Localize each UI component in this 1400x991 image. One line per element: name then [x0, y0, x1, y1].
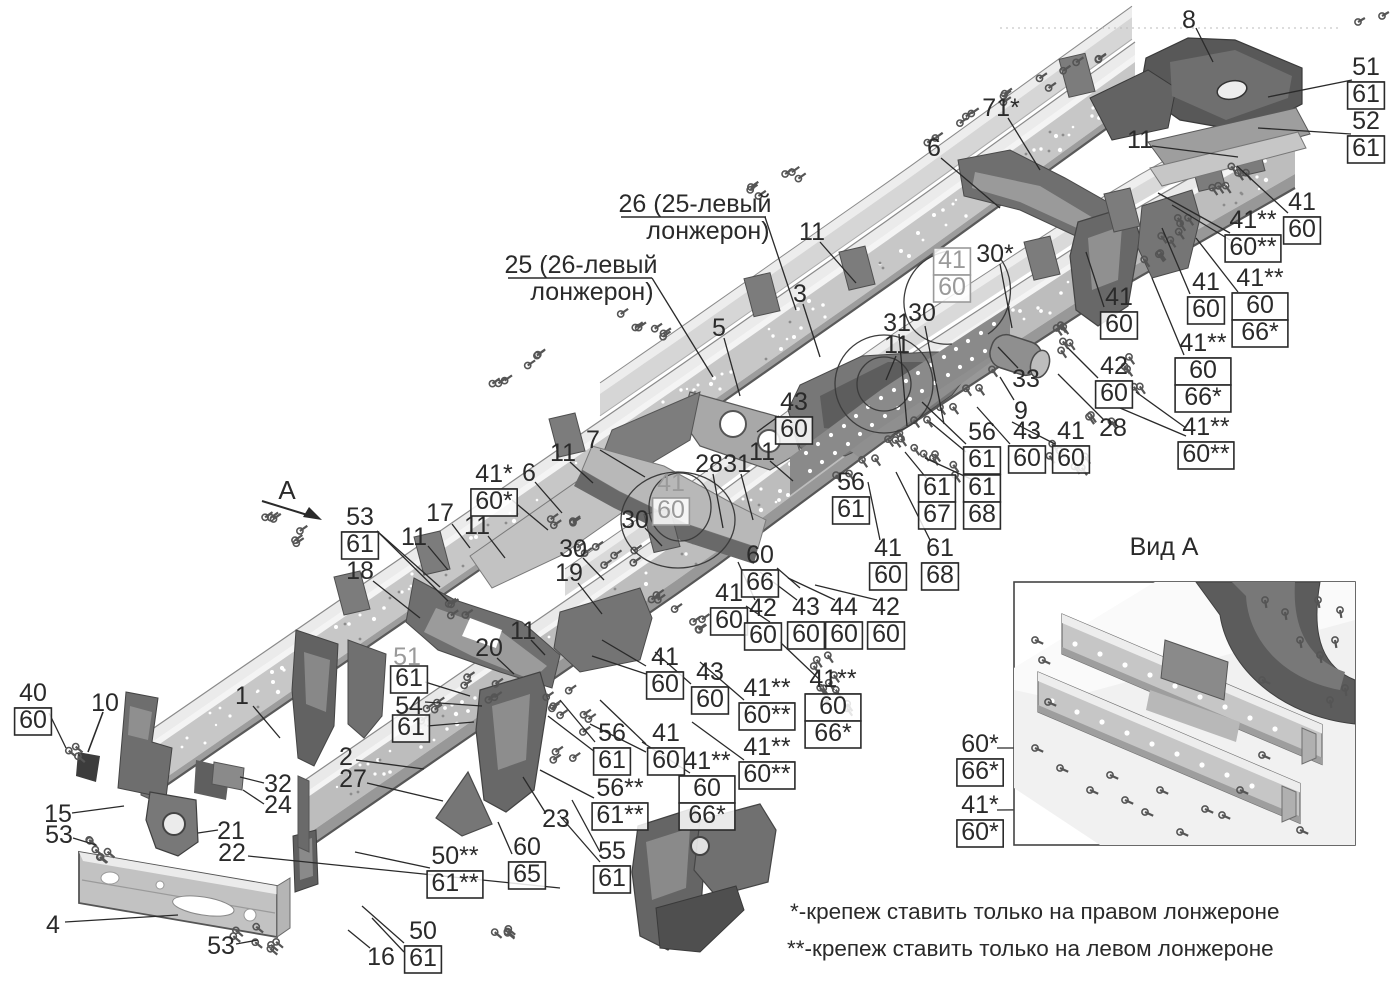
- svg-text:60**: 60**: [743, 760, 791, 788]
- svg-text:60: 60: [819, 692, 847, 720]
- svg-text:41: 41: [1105, 283, 1133, 311]
- svg-text:41: 41: [1192, 268, 1220, 296]
- svg-text:61: 61: [409, 944, 437, 972]
- svg-text:22: 22: [218, 839, 246, 867]
- svg-text:лонжерон): лонжерон): [530, 278, 653, 306]
- svg-text:41**: 41**: [743, 733, 791, 761]
- svg-text:30: 30: [908, 299, 936, 327]
- svg-text:43: 43: [792, 593, 820, 621]
- svg-text:33: 33: [1012, 365, 1040, 393]
- svg-text:66*: 66*: [961, 757, 999, 785]
- svg-text:60: 60: [651, 670, 679, 698]
- svg-text:4: 4: [46, 911, 60, 939]
- svg-text:60: 60: [780, 415, 808, 443]
- svg-text:28: 28: [695, 450, 723, 478]
- svg-text:44: 44: [830, 593, 858, 621]
- svg-text:11: 11: [749, 438, 775, 466]
- svg-text:61: 61: [837, 495, 865, 523]
- svg-text:61: 61: [923, 473, 951, 501]
- svg-text:60: 60: [1246, 291, 1274, 319]
- svg-text:66: 66: [746, 568, 774, 596]
- svg-text:31: 31: [723, 450, 751, 478]
- svg-text:61: 61: [598, 746, 626, 774]
- svg-text:11: 11: [464, 512, 490, 540]
- svg-text:28: 28: [1099, 414, 1127, 442]
- svg-text:41**: 41**: [683, 747, 731, 775]
- svg-text:**-крепеж ставить только на ле: **-крепеж ставить только на левом лонжер…: [787, 936, 1274, 961]
- svg-text:41**: 41**: [743, 674, 791, 702]
- svg-text:42: 42: [1100, 352, 1128, 380]
- svg-text:66*: 66*: [1241, 318, 1279, 346]
- svg-text:41: 41: [1057, 417, 1085, 445]
- svg-text:50**: 50**: [431, 842, 479, 870]
- svg-text:41*: 41*: [475, 460, 513, 488]
- svg-text:43: 43: [1013, 417, 1041, 445]
- svg-text:30: 30: [621, 506, 649, 534]
- svg-text:41**: 41**: [1182, 413, 1230, 441]
- svg-text:60: 60: [1105, 310, 1133, 338]
- svg-text:60**: 60**: [743, 701, 791, 729]
- svg-text:40: 40: [19, 679, 47, 707]
- svg-text:60: 60: [696, 685, 724, 713]
- svg-text:6: 6: [927, 134, 941, 162]
- svg-text:60: 60: [657, 496, 685, 524]
- svg-text:60: 60: [1100, 379, 1128, 407]
- svg-text:71*: 71*: [982, 94, 1020, 122]
- svg-text:26 (25-левый: 26 (25-левый: [619, 190, 772, 218]
- svg-text:41: 41: [874, 534, 902, 562]
- svg-text:60: 60: [830, 620, 858, 648]
- svg-text:60: 60: [874, 561, 902, 589]
- svg-text:60: 60: [749, 621, 777, 649]
- svg-text:лонжерон): лонжерон): [646, 217, 769, 245]
- svg-text:55: 55: [598, 837, 626, 865]
- svg-text:61: 61: [1352, 134, 1380, 162]
- svg-text:68: 68: [968, 500, 996, 528]
- svg-text:53: 53: [45, 821, 73, 849]
- svg-text:43: 43: [696, 658, 724, 686]
- svg-text:43: 43: [780, 388, 808, 416]
- svg-text:3: 3: [793, 280, 807, 308]
- svg-text:41: 41: [652, 719, 680, 747]
- svg-text:11: 11: [884, 331, 910, 359]
- svg-text:6: 6: [522, 459, 536, 487]
- svg-text:11: 11: [550, 439, 576, 467]
- svg-text:16: 16: [367, 943, 395, 971]
- svg-text:20: 20: [475, 634, 503, 662]
- svg-text:61: 61: [968, 473, 996, 501]
- svg-text:61: 61: [1352, 80, 1380, 108]
- svg-text:41**: 41**: [1179, 329, 1227, 357]
- svg-text:11: 11: [510, 617, 536, 645]
- svg-text:41: 41: [938, 246, 966, 274]
- svg-text:61**: 61**: [596, 801, 644, 829]
- svg-text:25 (26-левый: 25 (26-левый: [505, 251, 658, 279]
- svg-text:65: 65: [513, 860, 541, 888]
- svg-text:41: 41: [1288, 188, 1316, 216]
- svg-text:60*: 60*: [475, 487, 513, 515]
- svg-text:*-крепеж ставить только на пра: *-крепеж ставить только на правом лонжер…: [790, 899, 1279, 924]
- svg-text:53: 53: [207, 932, 235, 960]
- svg-text:53: 53: [346, 503, 374, 531]
- svg-text:61: 61: [395, 664, 423, 692]
- svg-text:60: 60: [1189, 356, 1217, 384]
- svg-text:11: 11: [799, 218, 825, 246]
- svg-text:60: 60: [1288, 215, 1316, 243]
- svg-text:56**: 56**: [596, 774, 644, 802]
- svg-text:42: 42: [749, 594, 777, 622]
- svg-text:А: А: [278, 475, 296, 505]
- svg-text:11: 11: [401, 523, 427, 551]
- svg-text:60: 60: [693, 774, 721, 802]
- svg-text:60: 60: [715, 606, 743, 634]
- svg-text:51: 51: [1352, 53, 1380, 81]
- svg-text:18: 18: [346, 557, 374, 585]
- svg-text:61: 61: [397, 713, 425, 741]
- svg-text:41**: 41**: [809, 665, 857, 693]
- svg-text:41: 41: [657, 469, 685, 497]
- svg-text:1: 1: [235, 682, 249, 710]
- svg-text:66*: 66*: [688, 801, 726, 829]
- svg-text:60**: 60**: [1182, 440, 1230, 468]
- svg-text:41: 41: [715, 579, 743, 607]
- svg-text:60: 60: [513, 833, 541, 861]
- svg-text:60: 60: [19, 706, 47, 734]
- svg-text:8: 8: [1182, 6, 1196, 34]
- svg-text:66*: 66*: [1184, 383, 1222, 411]
- svg-text:52: 52: [1352, 107, 1380, 135]
- svg-text:27: 27: [339, 765, 367, 793]
- svg-text:17: 17: [426, 499, 454, 527]
- svg-text:10: 10: [91, 689, 119, 717]
- svg-text:7: 7: [586, 426, 600, 454]
- svg-text:61**: 61**: [431, 869, 479, 897]
- svg-text:42: 42: [872, 593, 900, 621]
- svg-text:60: 60: [1057, 444, 1085, 472]
- svg-text:5: 5: [712, 314, 726, 342]
- svg-text:56: 56: [837, 468, 865, 496]
- svg-text:50: 50: [409, 917, 437, 945]
- svg-text:67: 67: [923, 500, 951, 528]
- svg-text:41**: 41**: [1229, 206, 1277, 234]
- svg-text:Вид А: Вид А: [1130, 533, 1199, 561]
- svg-text:41**: 41**: [1236, 264, 1284, 292]
- svg-text:60: 60: [652, 746, 680, 774]
- svg-text:61: 61: [968, 445, 996, 473]
- svg-text:56: 56: [598, 719, 626, 747]
- svg-text:68: 68: [926, 561, 954, 589]
- svg-text:60: 60: [872, 620, 900, 648]
- svg-text:11: 11: [1127, 126, 1153, 154]
- svg-text:60: 60: [938, 273, 966, 301]
- svg-text:60: 60: [1192, 295, 1220, 323]
- svg-text:41: 41: [651, 643, 679, 671]
- svg-text:24: 24: [264, 791, 292, 819]
- svg-text:23: 23: [542, 805, 570, 833]
- svg-text:30*: 30*: [976, 240, 1014, 268]
- svg-text:61: 61: [598, 864, 626, 892]
- svg-text:19: 19: [555, 559, 583, 587]
- svg-text:60: 60: [746, 541, 774, 569]
- svg-text:60**: 60**: [1229, 233, 1277, 261]
- svg-text:60: 60: [1013, 444, 1041, 472]
- svg-text:41*: 41*: [961, 791, 999, 819]
- svg-text:66*: 66*: [814, 719, 852, 747]
- svg-text:60: 60: [792, 620, 820, 648]
- svg-text:56: 56: [968, 418, 996, 446]
- svg-text:60*: 60*: [961, 818, 999, 846]
- svg-text:61: 61: [926, 534, 954, 562]
- svg-text:61: 61: [346, 530, 374, 558]
- svg-text:60*: 60*: [961, 730, 999, 758]
